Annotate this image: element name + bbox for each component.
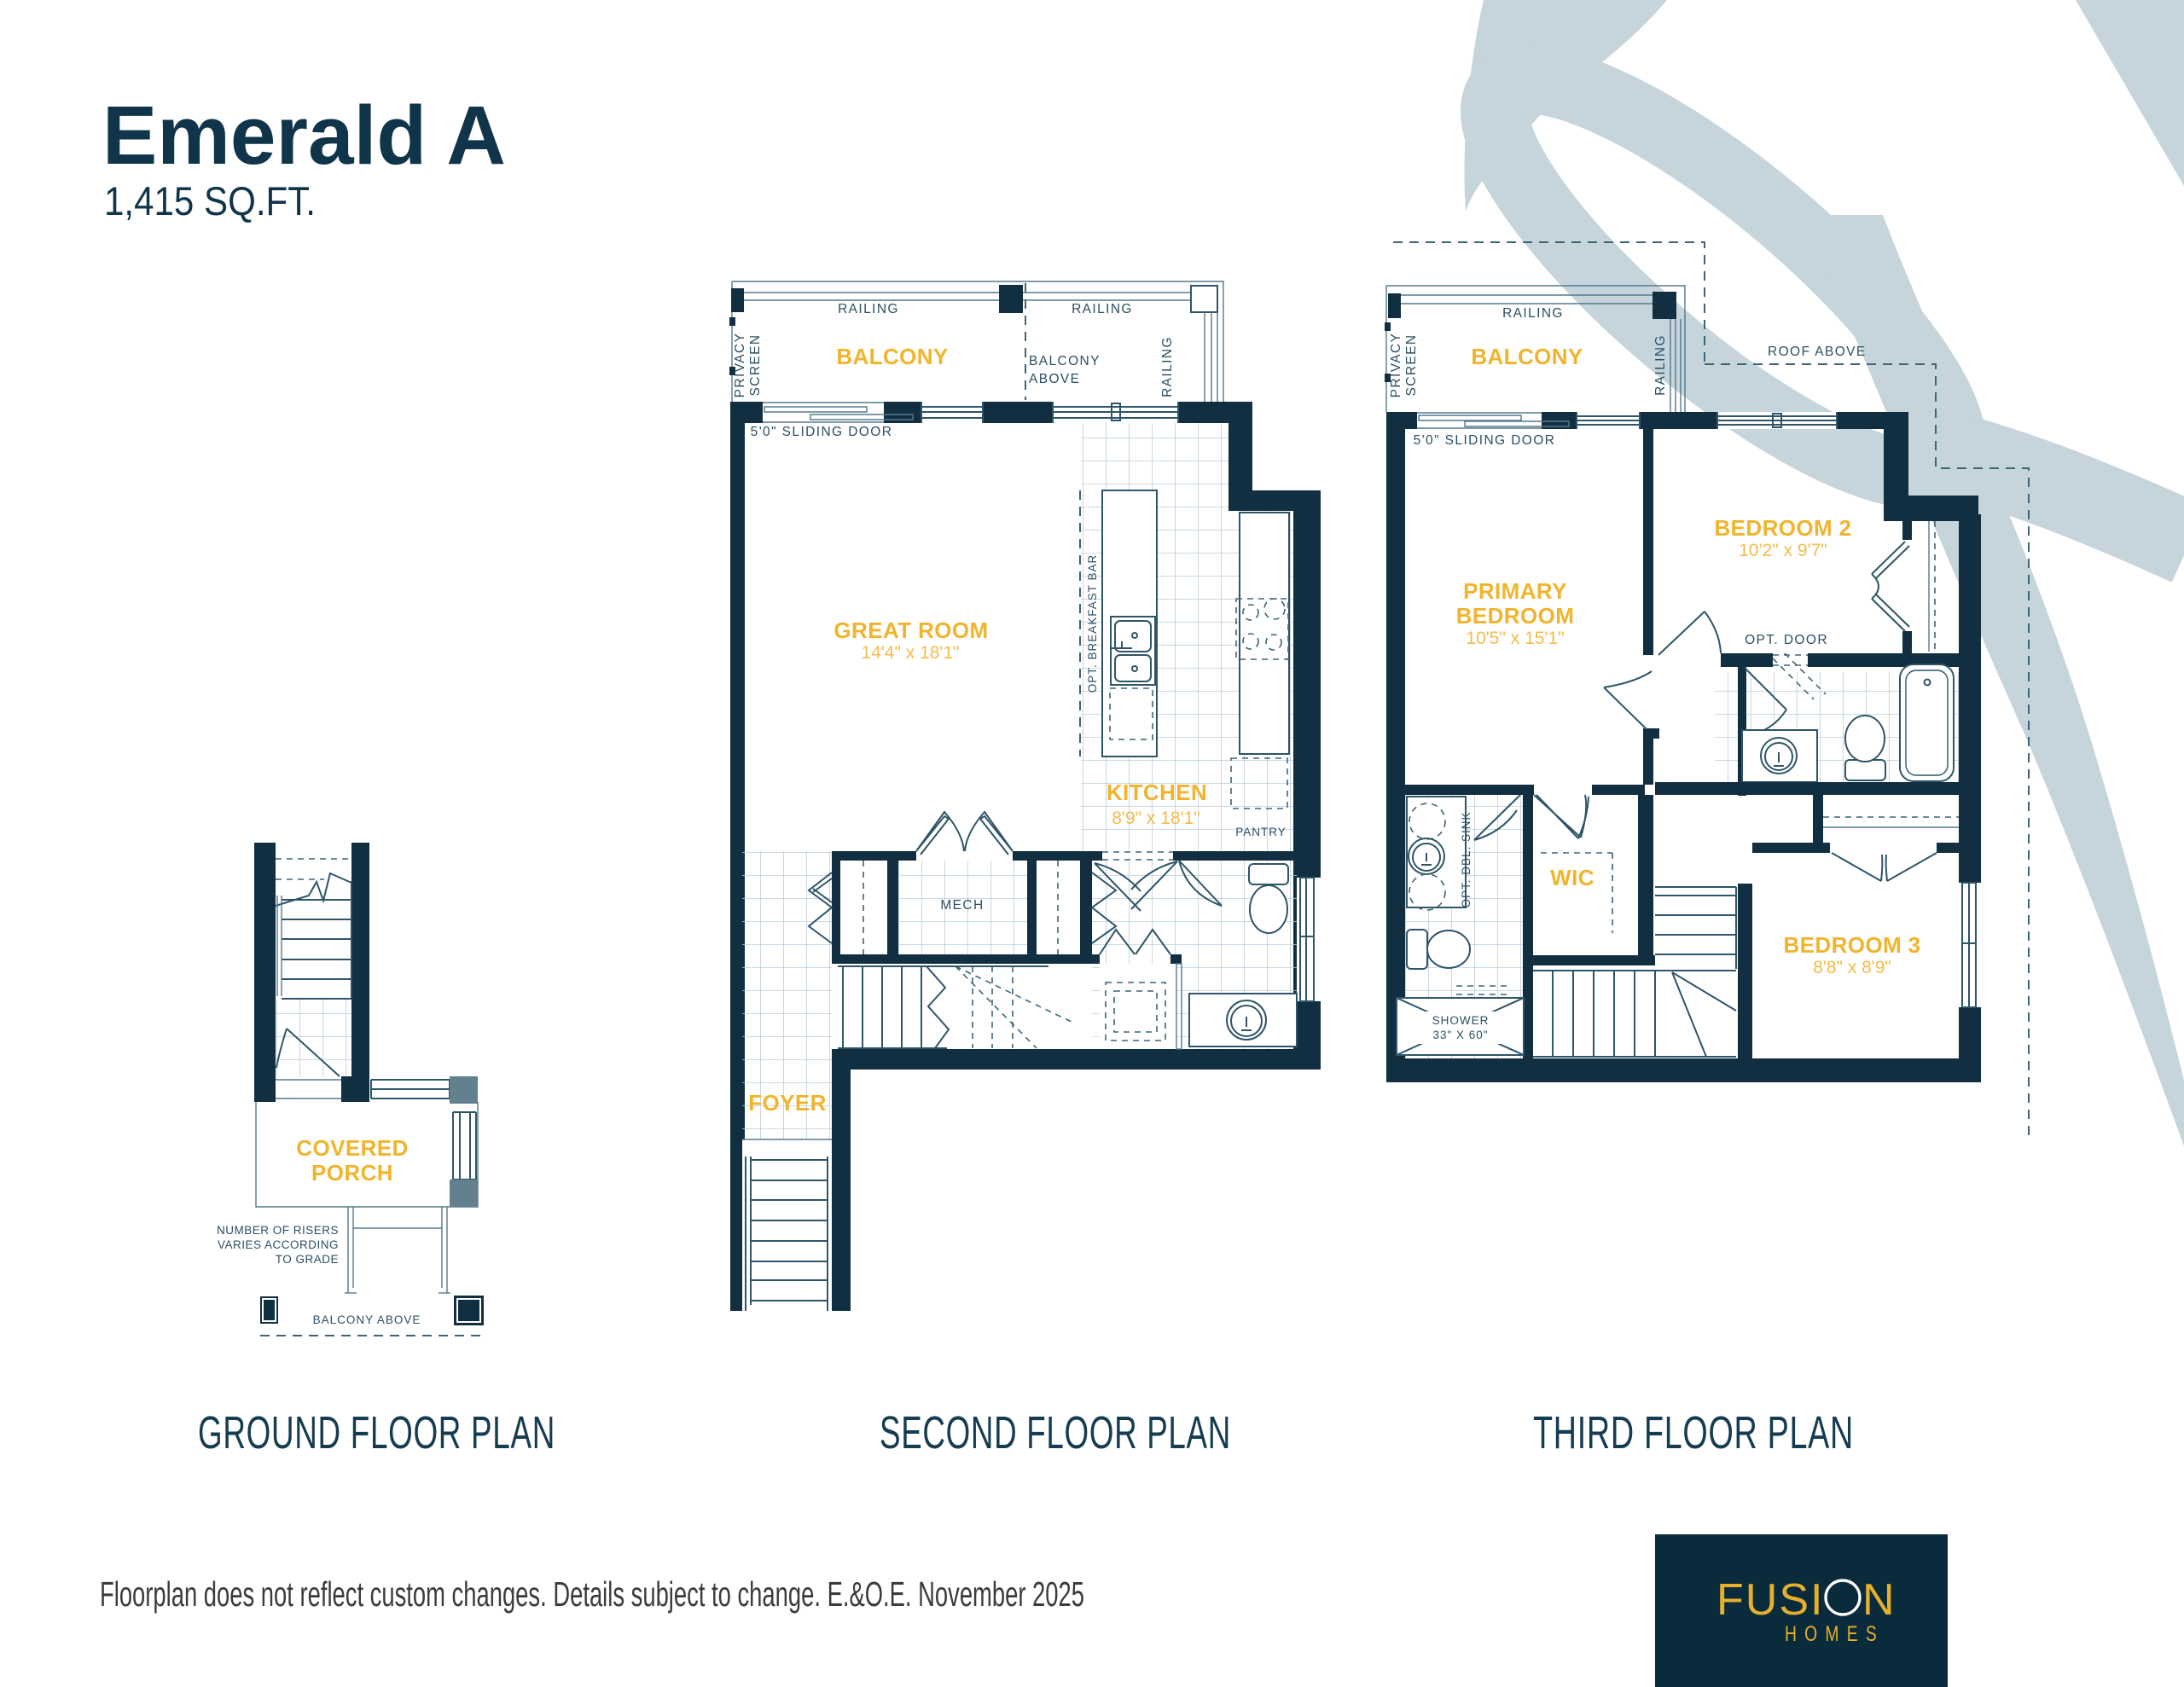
svg-text:10'2" x 9'7": 10'2" x 9'7" <box>1739 541 1827 560</box>
svg-text:HOMES: HOMES <box>1785 1622 1885 1646</box>
svg-text:PRIVACY: PRIVACY <box>733 333 747 398</box>
svg-text:Emerald A: Emerald A <box>102 89 506 182</box>
svg-text:NUMBER OF RISERS: NUMBER OF RISERS <box>217 1224 339 1237</box>
svg-text:OPT. DOOR: OPT. DOOR <box>1745 633 1828 647</box>
svg-text:BEDROOM: BEDROOM <box>1456 603 1575 629</box>
svg-text:BALCONY ABOVE: BALCONY ABOVE <box>313 1313 421 1326</box>
svg-text:PRIVACY: PRIVACY <box>1389 333 1403 398</box>
svg-text:BALCONY: BALCONY <box>836 344 948 369</box>
svg-text:RAILING: RAILING <box>1653 334 1668 396</box>
svg-text:SECOND FLOOR PLAN: SECOND FLOOR PLAN <box>880 1407 1231 1458</box>
svg-text:10'5" x 15'1": 10'5" x 15'1" <box>1466 629 1564 648</box>
svg-text:1,415 SQ.FT.: 1,415 SQ.FT. <box>104 178 316 223</box>
svg-text:SCREEN: SCREEN <box>748 334 763 397</box>
svg-text:KITCHEN: KITCHEN <box>1107 780 1207 805</box>
svg-text:FOYER: FOYER <box>748 1090 827 1116</box>
svg-text:PANTRY: PANTRY <box>1235 826 1287 838</box>
svg-text:VARIES ACCORDING: VARIES ACCORDING <box>218 1238 339 1251</box>
svg-text:Floorplan does not reflect cus: Floorplan does not reflect custom change… <box>100 1574 1084 1614</box>
svg-text:BEDROOM 3: BEDROOM 3 <box>1783 932 1920 958</box>
svg-text:8'8" x 8'9": 8'8" x 8'9" <box>1813 958 1891 977</box>
svg-text:33" X 60": 33" X 60" <box>1432 1029 1488 1041</box>
svg-text:BEDROOM 2: BEDROOM 2 <box>1714 515 1851 541</box>
svg-text:BALCONY: BALCONY <box>1471 344 1583 369</box>
svg-text:WIC: WIC <box>1550 865 1594 890</box>
svg-text:PORCH: PORCH <box>311 1160 393 1186</box>
svg-text:TO GRADE: TO GRADE <box>276 1253 339 1266</box>
svg-text:SHOWER: SHOWER <box>1432 1014 1490 1027</box>
svg-text:BALCONY: BALCONY <box>1029 354 1101 368</box>
svg-text:RAILING: RAILING <box>838 302 899 316</box>
svg-text:8'9" x 18'1": 8'9" x 18'1" <box>1112 809 1200 828</box>
svg-text:OPT. DBL. SINK: OPT. DBL. SINK <box>1460 811 1472 907</box>
svg-text:5'0" SLIDING DOOR: 5'0" SLIDING DOOR <box>1414 433 1556 448</box>
svg-text:PRIMARY: PRIMARY <box>1463 578 1567 604</box>
svg-text:RAILING: RAILING <box>1072 302 1133 316</box>
svg-text:FUSI: FUSI <box>1716 1575 1824 1625</box>
svg-text:ROOF ABOVE: ROOF ABOVE <box>1768 345 1867 359</box>
svg-text:GREAT ROOM: GREAT ROOM <box>834 617 988 643</box>
svg-text:THIRD FLOOR PLAN: THIRD FLOOR PLAN <box>1533 1407 1854 1458</box>
svg-text:14'4" x 18'1": 14'4" x 18'1" <box>861 643 959 663</box>
svg-text:GROUND FLOOR PLAN: GROUND FLOOR PLAN <box>198 1407 555 1458</box>
svg-text:COVERED: COVERED <box>296 1135 408 1161</box>
svg-text:N: N <box>1862 1575 1895 1625</box>
svg-text:RAILING: RAILING <box>1160 336 1175 397</box>
svg-text:RAILING: RAILING <box>1502 306 1564 321</box>
svg-text:MECH: MECH <box>940 898 984 913</box>
svg-text:ABOVE: ABOVE <box>1029 372 1080 386</box>
svg-text:5'0" SLIDING DOOR: 5'0" SLIDING DOOR <box>751 425 893 439</box>
svg-text:SCREEN: SCREEN <box>1404 334 1419 397</box>
svg-text:OPT. BREAKFAST BAR: OPT. BREAKFAST BAR <box>1086 554 1099 693</box>
